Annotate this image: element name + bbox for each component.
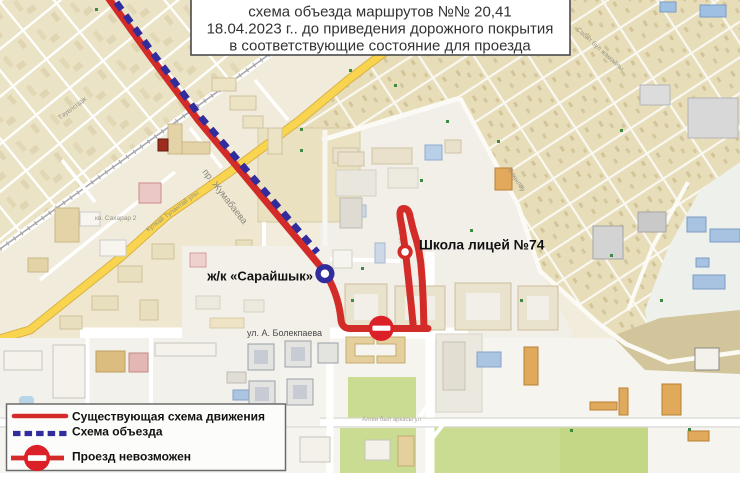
svg-text:схема объезда маршрутов №№ 20,: схема объезда маршрутов №№ 20,41 [248, 4, 511, 21]
svg-text:Алгеи был аркасы ул: Алгеи был аркасы ул [362, 417, 421, 423]
svg-text:ж/к «Сарайшык»: ж/к «Сарайшык» [206, 269, 313, 284]
svg-text:18.04.2023 г.. до приведения д: 18.04.2023 г.. до приведения дорожного п… [207, 21, 554, 38]
svg-text:Существующая схема движения: Существующая схема движения [72, 410, 265, 424]
svg-text:Проезд невозможен: Проезд невозможен [72, 450, 191, 464]
svg-text:Схема объезда: Схема объезда [72, 425, 163, 439]
svg-text:ул. А. Болекпаева: ул. А. Болекпаева [247, 328, 322, 338]
svg-text:Школа лицей №74: Школа лицей №74 [419, 238, 545, 253]
svg-text:кв. Сахарар 2: кв. Сахарар 2 [95, 215, 137, 222]
svg-text:в соответствующие состояние дл: в соответствующие состояние для проезда [229, 38, 531, 55]
